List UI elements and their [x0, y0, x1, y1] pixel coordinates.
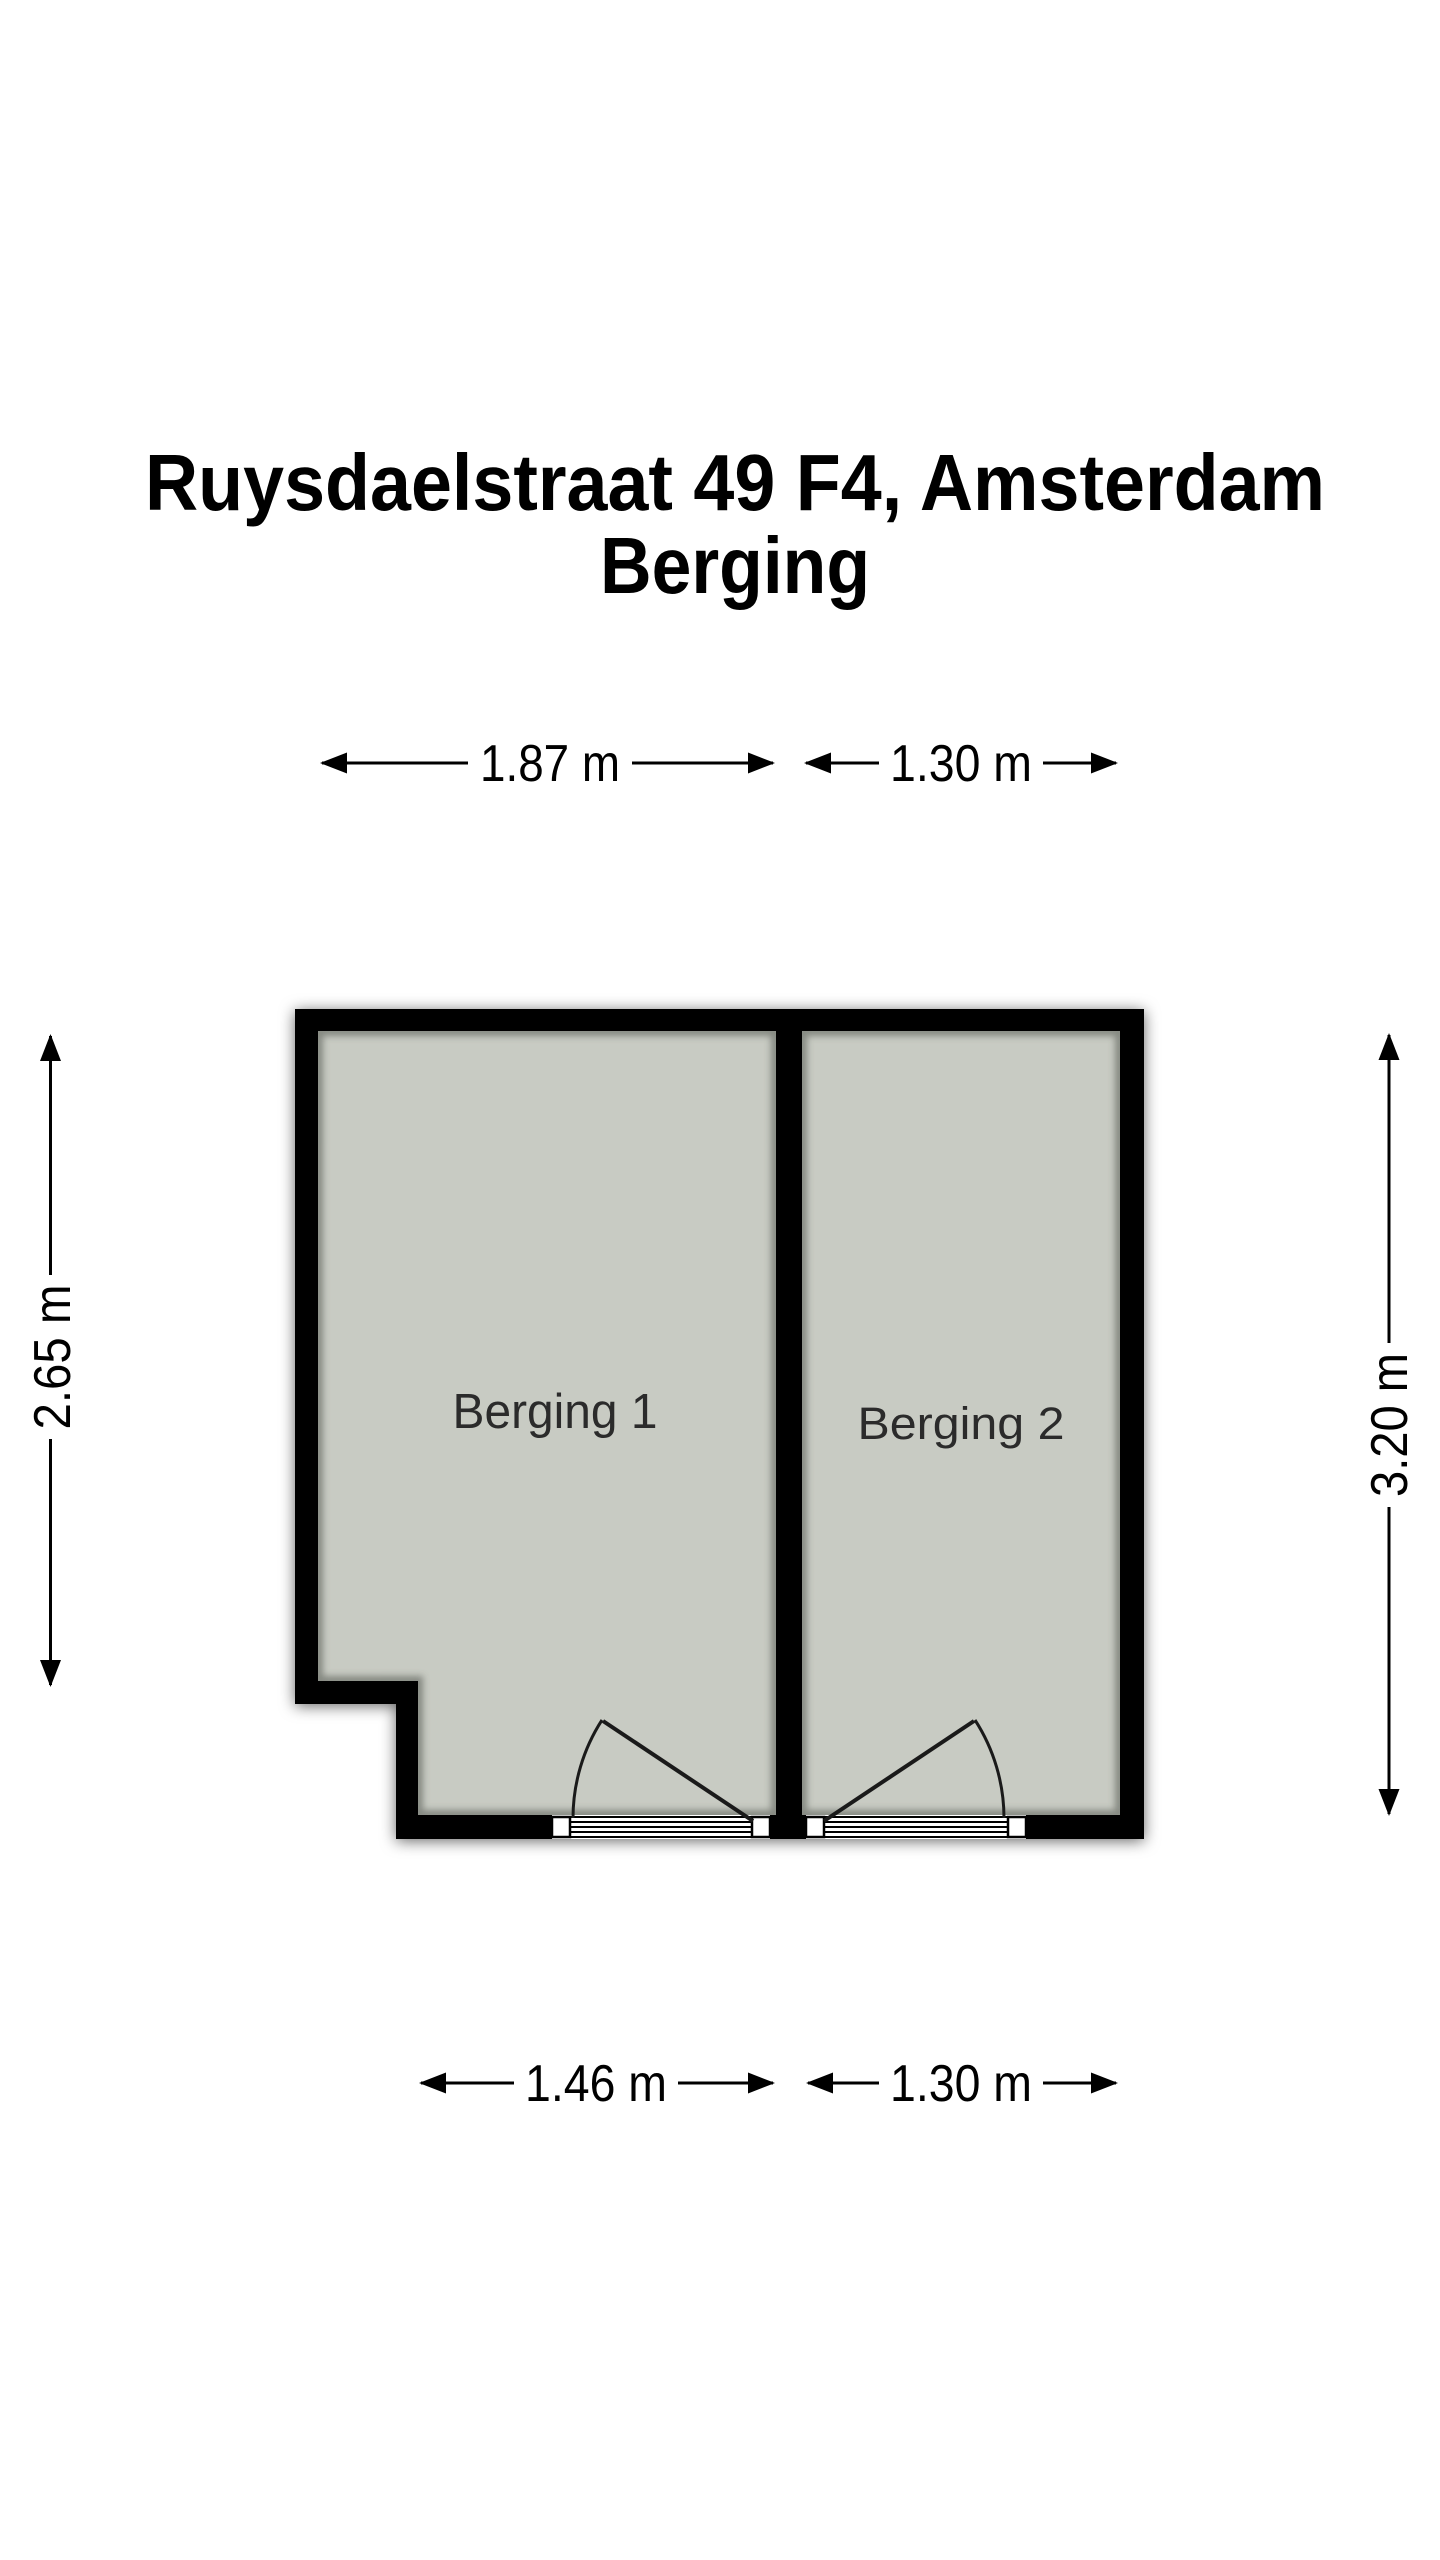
svg-text:Berging: Berging [600, 521, 870, 610]
svg-text:1.30 m: 1.30 m [890, 2055, 1032, 2113]
svg-text:1.87 m: 1.87 m [480, 735, 620, 793]
svg-text:2.65 m: 2.65 m [24, 1285, 82, 1430]
svg-text:Berging 1: Berging 1 [453, 1385, 658, 1439]
svg-text:1.30 m: 1.30 m [890, 735, 1032, 793]
svg-text:1.46 m: 1.46 m [525, 2055, 667, 2113]
svg-text:Berging 2: Berging 2 [858, 1398, 1065, 1449]
svg-text:Ruysdaelstraat 49 F4, Amsterda: Ruysdaelstraat 49 F4, Amsterdam [145, 438, 1325, 527]
svg-text:3.20 m: 3.20 m [1361, 1353, 1419, 1497]
